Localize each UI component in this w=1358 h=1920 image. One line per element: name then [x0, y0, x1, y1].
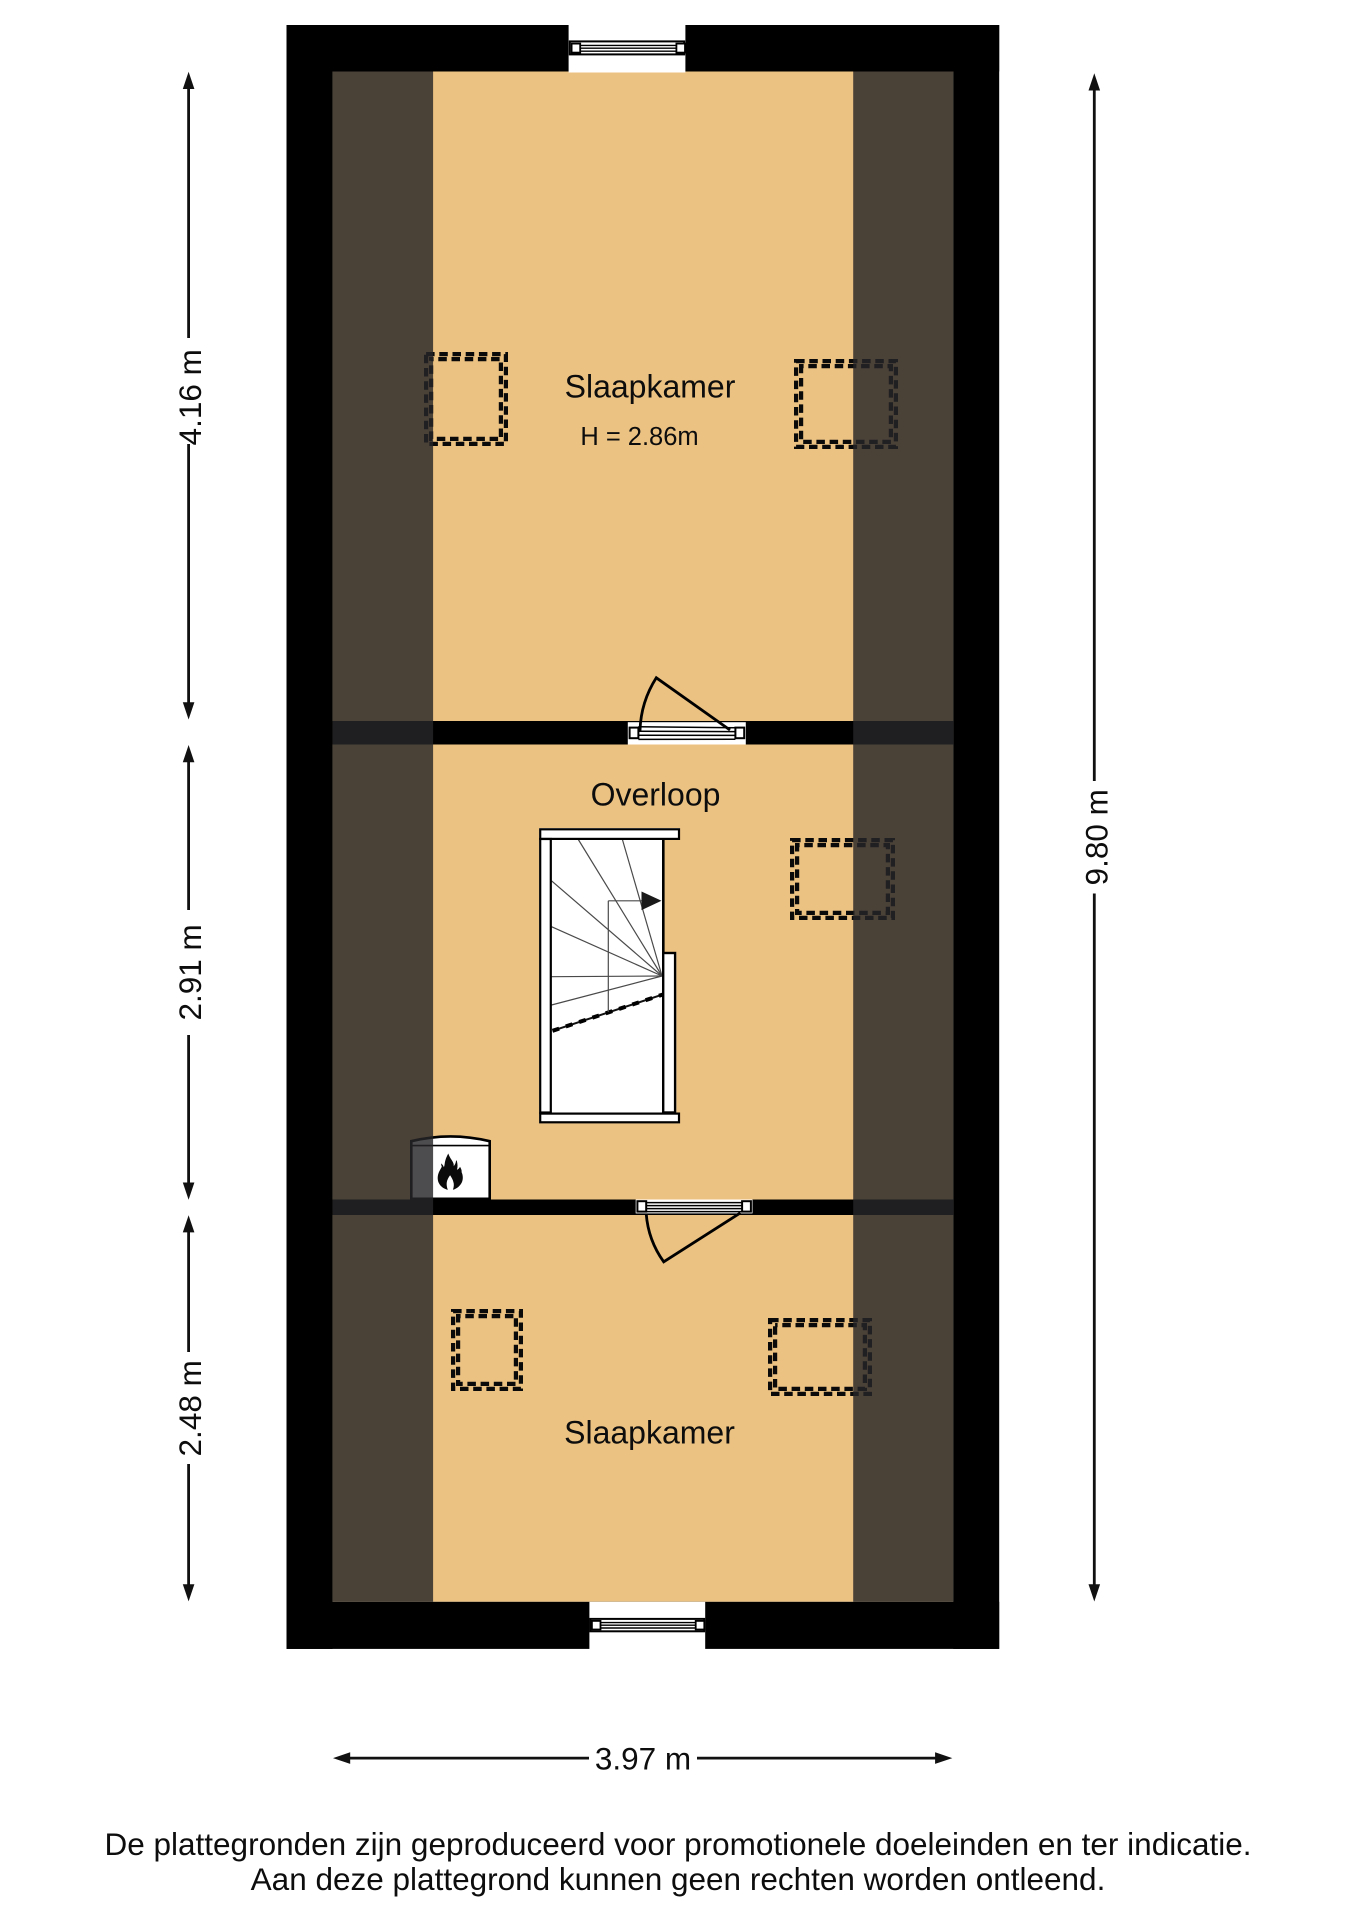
svg-text:9.80 m: 9.80 m	[1079, 789, 1115, 885]
svg-text:4.16 m: 4.16 m	[172, 349, 208, 445]
svg-text:2.48 m: 2.48 m	[172, 1360, 208, 1456]
svg-text:Slaapkamer: Slaapkamer	[564, 1415, 735, 1451]
svg-text:3.97 m: 3.97 m	[595, 1741, 691, 1777]
svg-text:2.91 m: 2.91 m	[172, 924, 208, 1020]
svg-text:Slaapkamer: Slaapkamer	[565, 369, 736, 405]
svg-text:Overloop: Overloop	[591, 777, 721, 813]
svg-text:H = 2.86m: H = 2.86m	[580, 423, 698, 451]
svg-text:De plattegronden zijn geproduc: De plattegronden zijn geproduceerd voor …	[104, 1826, 1251, 1862]
svg-text:Aan deze plattegrond kunnen ge: Aan deze plattegrond kunnen geen rechten…	[251, 1861, 1106, 1897]
